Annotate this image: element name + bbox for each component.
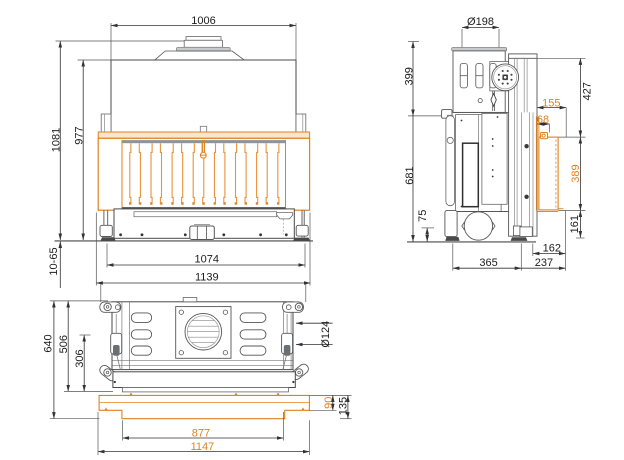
svg-text:640: 640 [43,334,55,352]
svg-text:237: 237 [535,257,553,269]
svg-text:365: 365 [479,257,497,269]
svg-text:1139: 1139 [195,272,219,284]
svg-text:135: 135 [337,397,349,415]
svg-text:90: 90 [323,397,335,409]
svg-text:977: 977 [74,126,86,144]
svg-text:161: 161 [569,215,581,233]
svg-text:1147: 1147 [191,441,215,453]
svg-text:877: 877 [192,427,210,439]
svg-text:306: 306 [74,349,86,367]
svg-text:10-65: 10-65 [48,247,60,275]
svg-text:1081: 1081 [51,128,63,152]
svg-text:389: 389 [570,164,582,182]
svg-text:399: 399 [404,67,416,85]
svg-text:155: 155 [542,97,560,109]
svg-text:1074: 1074 [195,254,219,266]
svg-text:162: 162 [543,243,561,255]
svg-text:Ø124: Ø124 [320,321,332,348]
svg-text:Ø198: Ø198 [467,16,494,28]
svg-text:506: 506 [58,335,70,353]
svg-text:681: 681 [404,166,416,184]
svg-text:68: 68 [537,114,549,126]
svg-text:1006: 1006 [191,15,215,27]
svg-text:75: 75 [417,210,429,222]
svg-text:427: 427 [582,82,594,100]
